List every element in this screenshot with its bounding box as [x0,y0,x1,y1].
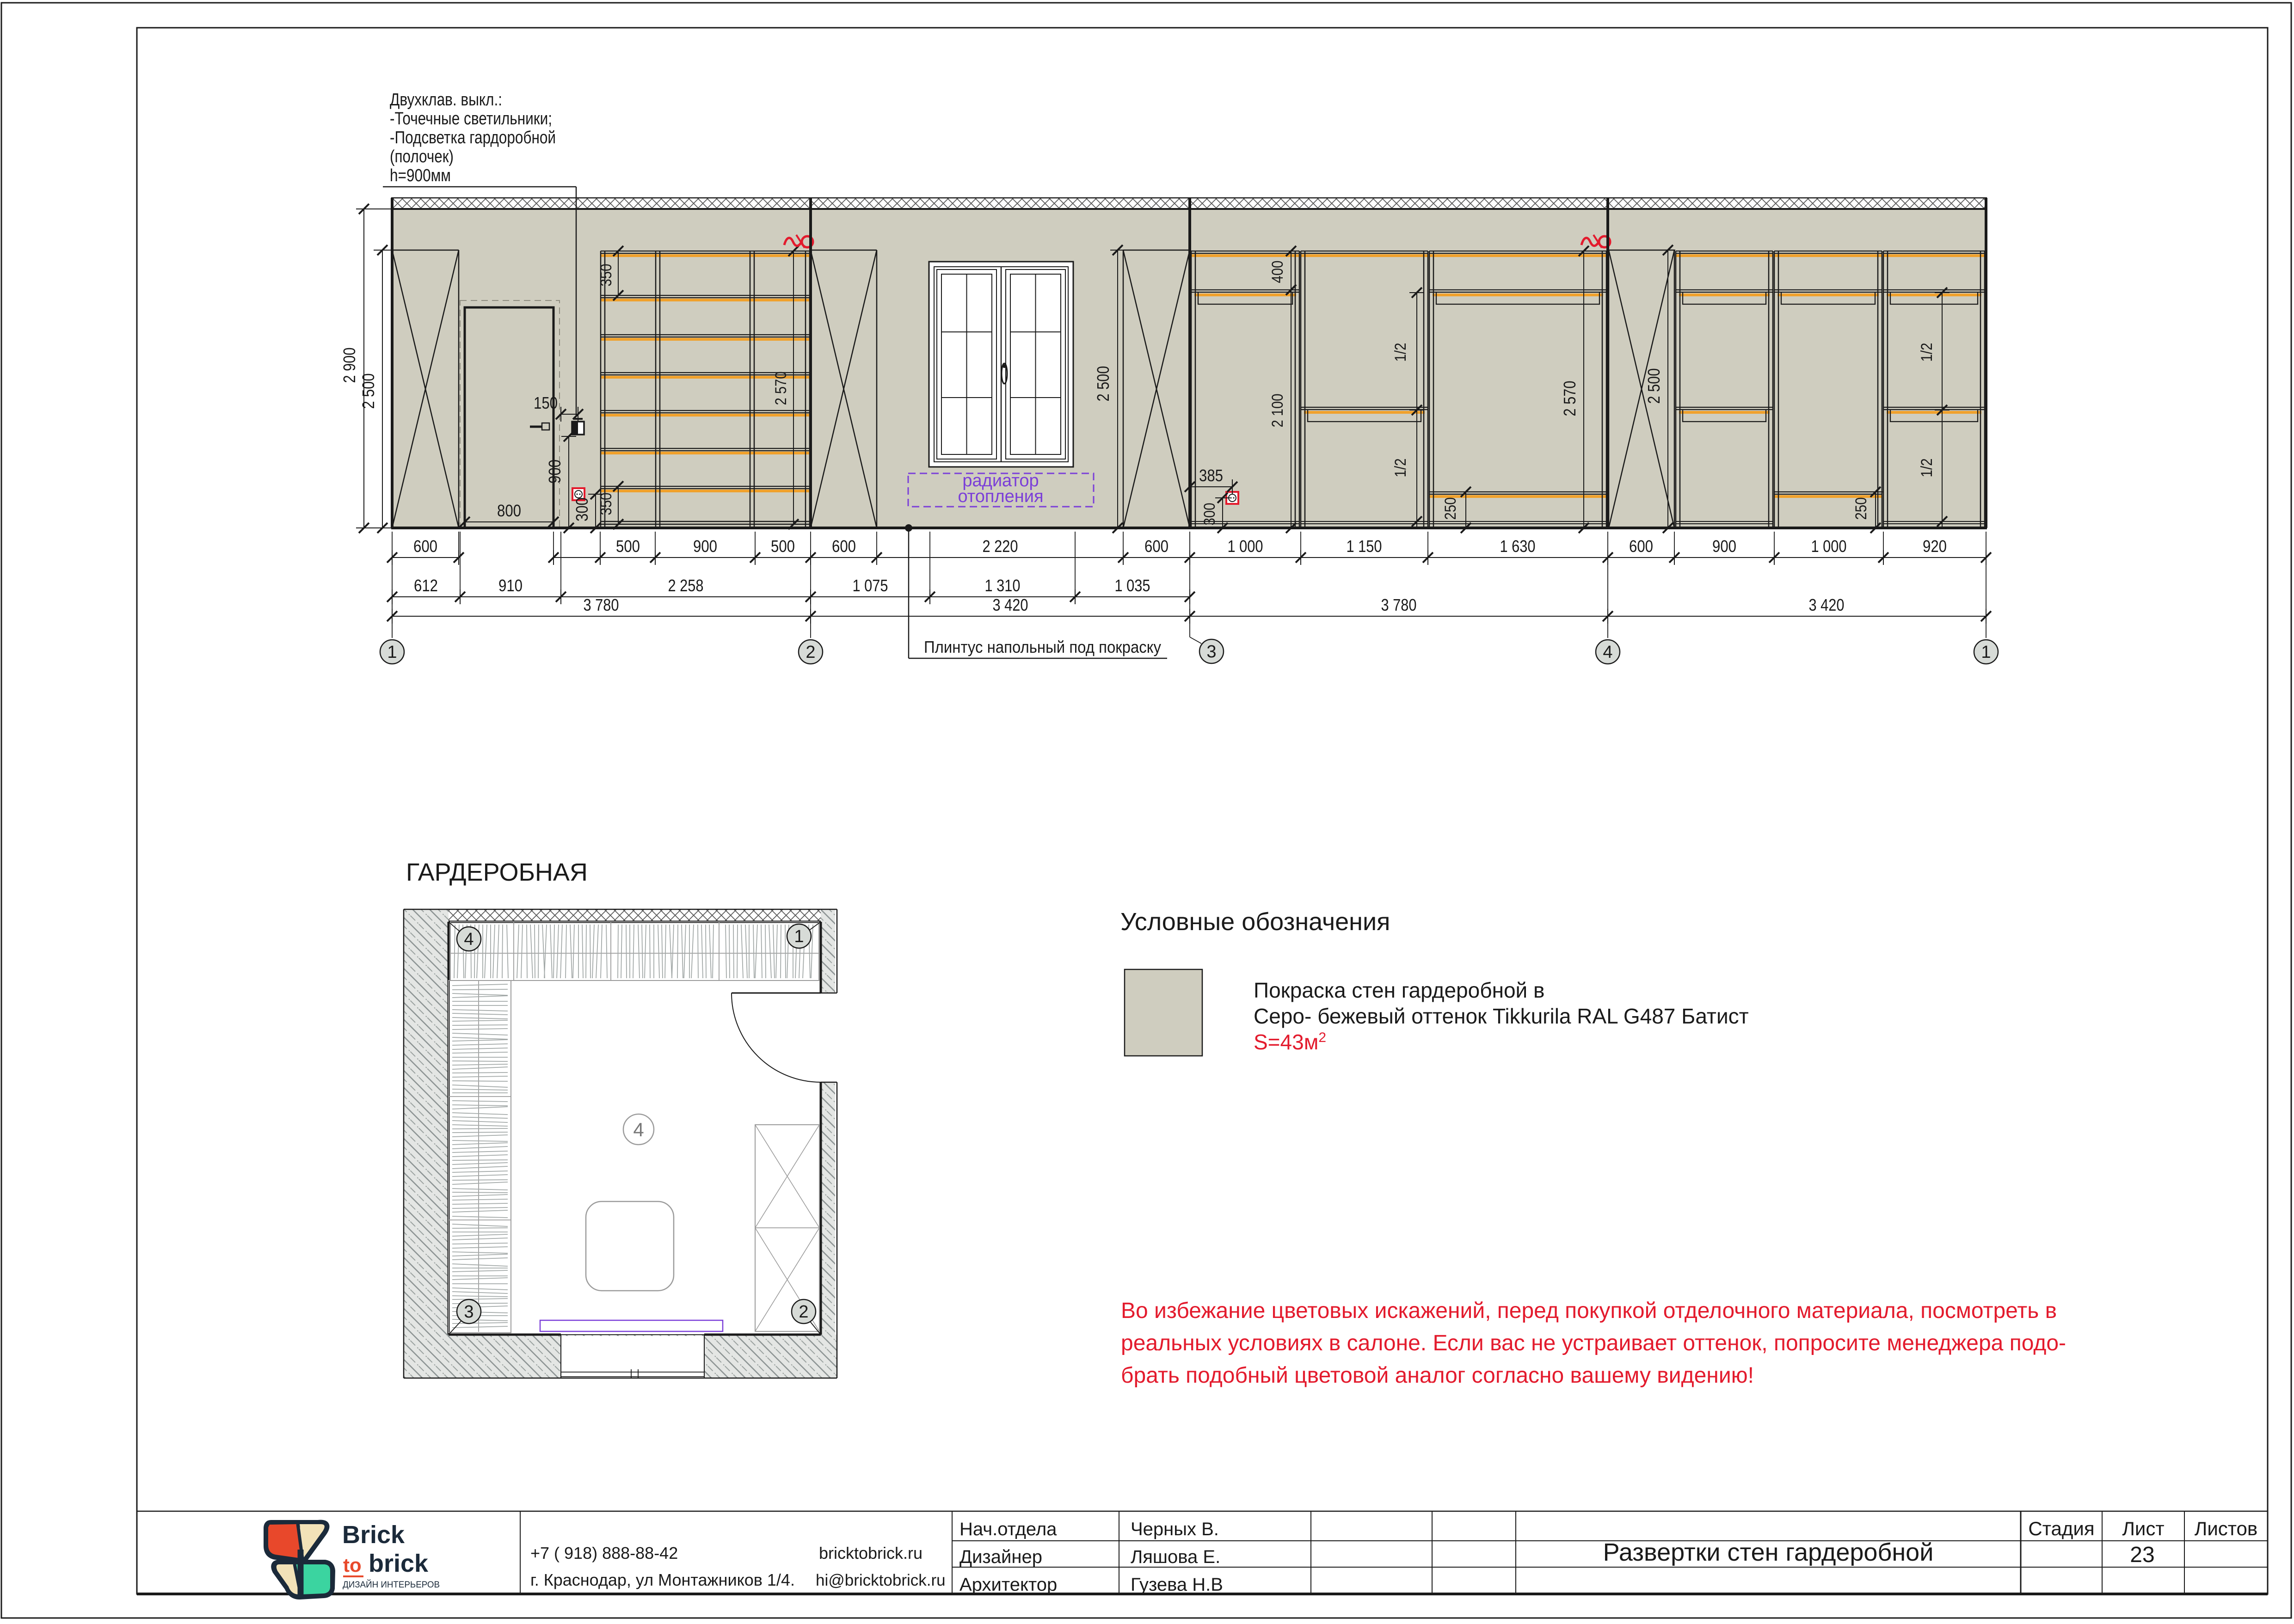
svg-text:2 500: 2 500 [359,374,378,409]
svg-text:bricktobrick.ru: bricktobrick.ru [819,1544,923,1563]
svg-text:Лист: Лист [2122,1518,2164,1539]
svg-text:1: 1 [1981,643,1991,662]
svg-text:1: 1 [794,927,804,946]
svg-text:500: 500 [771,537,795,556]
svg-text:2 258: 2 258 [668,576,704,595]
svg-text:4: 4 [633,1119,644,1140]
svg-text:2 500: 2 500 [1644,368,1663,404]
svg-text:Листов: Листов [2195,1518,2257,1539]
svg-text:3 420: 3 420 [993,595,1028,614]
svg-text:1/2: 1/2 [1392,459,1409,478]
svg-text:500: 500 [616,537,640,556]
svg-text:300: 300 [1201,503,1218,526]
svg-text:150: 150 [534,393,558,412]
svg-text:реальных условиях в салоне. Ес: реальных условиях в салоне. Если вас не … [1121,1331,2066,1355]
svg-text:4: 4 [1603,643,1612,662]
svg-text:Дизайнер: Дизайнер [959,1547,1042,1567]
svg-text:1: 1 [387,643,397,662]
svg-text:900: 900 [545,460,564,484]
svg-text:910: 910 [498,576,523,595]
svg-text:920: 920 [1923,537,1947,556]
svg-text:Ляшова Е.: Ляшова Е. [1131,1547,1220,1567]
svg-text:брать подобный цветовой аналог: брать подобный цветовой аналог согласно … [1121,1363,1754,1388]
svg-text:600: 600 [1144,537,1169,556]
svg-text:Покраска стен гардеробной в: Покраска стен гардеробной в [1254,978,1544,1002]
svg-text:3 780: 3 780 [1381,595,1417,614]
svg-text:250: 250 [1442,497,1459,520]
svg-text:Архитектор: Архитектор [959,1575,1057,1595]
svg-text:1/2: 1/2 [1918,459,1936,478]
svg-text:3: 3 [1206,642,1216,662]
svg-text:400: 400 [1269,261,1286,283]
svg-text:Двухклав. выкл.:: Двухклав. выкл.: [390,90,502,110]
svg-text:+7 ( 918) 888-88-42: +7 ( 918) 888-88-42 [530,1544,678,1563]
svg-text:4: 4 [464,930,474,949]
svg-text:600: 600 [832,537,856,556]
svg-text:г. Краснодар, ул Монтажников: г. Краснодар, ул Монтажников 1/4. [530,1570,795,1589]
svg-text:Развертки стен гардеробной: Развертки стен гардеробной [1603,1538,1934,1566]
svg-text:2 220: 2 220 [983,537,1018,556]
svg-text:Серо- бежевый оттенок Tikkuril: Серо- бежевый оттенок Tikkurila RAL G487… [1254,1004,1749,1028]
svg-text:600: 600 [1629,537,1653,556]
svg-text:-Точечные светильники;: -Точечные светильники; [390,109,552,129]
svg-text:Во избежание цветовых искажени: Во избежание цветовых искажений, перед п… [1121,1299,2057,1323]
svg-text:612: 612 [414,576,438,595]
svg-text:350: 350 [597,264,615,287]
svg-text:2 570: 2 570 [1560,381,1579,417]
svg-text:-Подсветка гардоробной: -Подсветка гардоробной [390,128,556,147]
svg-text:385: 385 [1199,466,1223,485]
svg-text:to: to [343,1554,362,1576]
svg-text:23: 23 [2130,1543,2154,1567]
svg-text:1 000: 1 000 [1228,537,1263,556]
svg-text:Brick: Brick [342,1521,405,1549]
svg-text:Нач.отдела: Нач.отдела [959,1519,1057,1539]
svg-text:Стадия: Стадия [2028,1518,2094,1539]
svg-text:900: 900 [693,537,717,556]
svg-text:350: 350 [597,493,615,515]
svg-text:1 075: 1 075 [853,576,888,595]
svg-text:1 035: 1 035 [1115,576,1150,595]
svg-text:(полочек): (полочек) [390,147,454,166]
svg-text:250: 250 [1852,497,1870,520]
svg-text:2 100: 2 100 [1269,394,1286,428]
svg-text:800: 800 [497,501,521,520]
svg-text:hi@bricktobrick.ru: hi@bricktobrick.ru [816,1571,946,1589]
svg-text:1/2: 1/2 [1392,343,1409,362]
svg-text:S=43м2: S=43м2 [1254,1030,1326,1054]
svg-text:3 780: 3 780 [584,595,619,614]
svg-text:2 570: 2 570 [772,372,790,405]
svg-text:3: 3 [464,1302,474,1322]
svg-text:900: 900 [1712,537,1736,556]
svg-text:1 630: 1 630 [1500,537,1536,556]
svg-text:ДИЗАЙН ИНТЕРЬЕРОВ: ДИЗАЙН ИНТЕРЬЕРОВ [343,1580,440,1590]
svg-text:300: 300 [572,497,591,521]
svg-text:3 420: 3 420 [1809,595,1845,614]
svg-text:1 150: 1 150 [1347,537,1382,556]
svg-text:brick: brick [369,1550,429,1577]
svg-text:отопления: отопления [958,487,1043,506]
svg-text:2: 2 [799,1302,808,1322]
svg-text:Условные обозначения: Условные обозначения [1120,908,1390,936]
svg-text:1 310: 1 310 [985,576,1021,595]
svg-text:600: 600 [413,537,437,556]
svg-text:2 500: 2 500 [1094,366,1113,402]
svg-text:ГАРДЕРОБНАЯ: ГАРДЕРОБНАЯ [406,858,588,886]
svg-text:Плинтус напольный под покраску: Плинтус напольный под покраску [924,637,1161,656]
svg-text:1/2: 1/2 [1918,343,1936,362]
svg-text:h=900мм: h=900мм [390,166,451,185]
svg-text:2: 2 [806,643,815,662]
svg-text:Гузева Н.В: Гузева Н.В [1131,1575,1223,1595]
svg-text:1 000: 1 000 [1811,537,1847,556]
svg-text:Черных В.: Черных В. [1131,1519,1219,1539]
svg-text:2 900: 2 900 [340,348,359,383]
